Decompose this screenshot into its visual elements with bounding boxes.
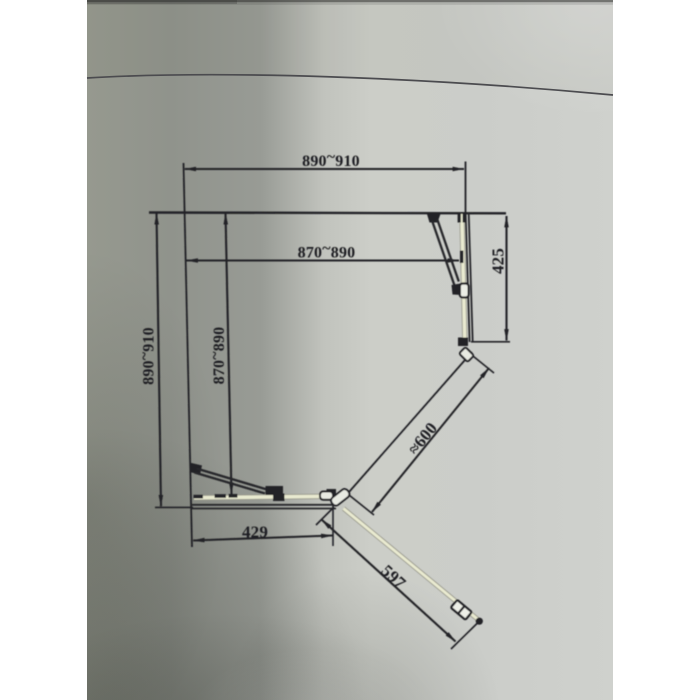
svg-text:425: 425 bbox=[489, 248, 508, 274]
svg-text:429: 429 bbox=[242, 523, 268, 542]
svg-text:890~910: 890~910 bbox=[302, 149, 360, 171]
svg-text:597: 597 bbox=[377, 561, 409, 593]
svg-text:890~910: 890~910 bbox=[136, 327, 158, 385]
svg-text:870~890: 870~890 bbox=[207, 327, 229, 385]
svg-text:870~890: 870~890 bbox=[298, 240, 356, 262]
svg-text:≈600: ≈600 bbox=[404, 419, 441, 459]
